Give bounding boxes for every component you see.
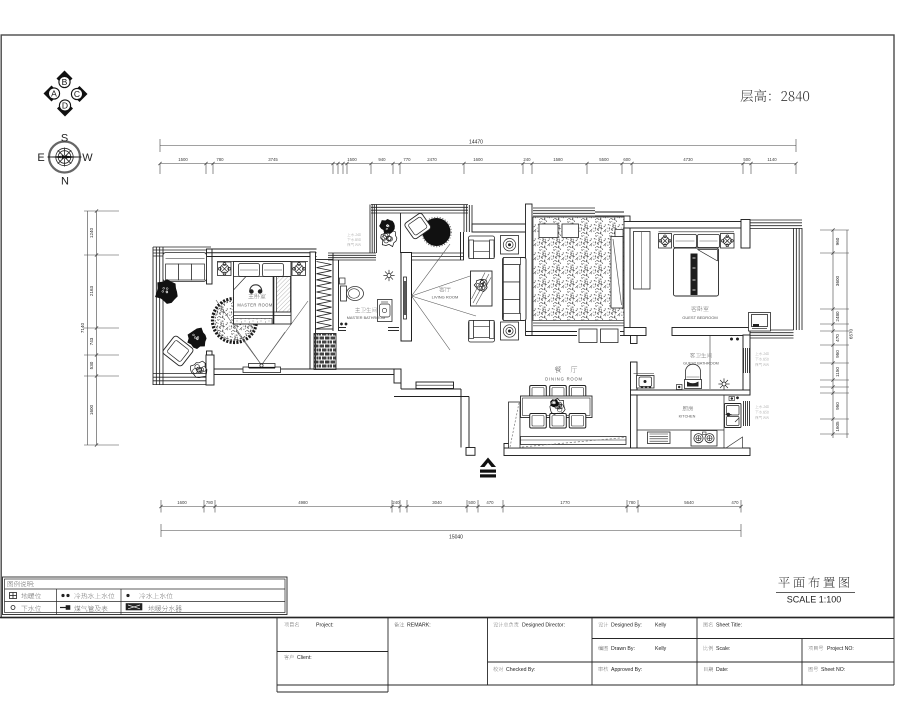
svg-text:KITCHEN: KITCHEN [679,415,696,419]
svg-text:1770: 1770 [560,500,570,505]
svg-text:1580: 1580 [553,157,563,162]
svg-text:GUEST BEDROOM: GUEST BEDROOM [682,315,718,320]
svg-text:15040: 15040 [449,535,463,541]
svg-text:1600: 1600 [89,404,94,415]
svg-text:LIVING ROOM: LIVING ROOM [432,295,459,300]
svg-text:S: S [61,133,68,145]
svg-text:Kelly: Kelly [655,623,667,629]
svg-text:REMARK:: REMARK: [407,623,431,629]
svg-text:5500: 5500 [599,157,609,162]
svg-text:950: 950 [835,402,840,410]
svg-text:A: A [51,88,57,98]
svg-text:470: 470 [835,334,840,342]
svg-text:MASTER BATHROOM: MASTER BATHROOM [347,316,386,320]
svg-text:3745: 3745 [268,157,278,162]
svg-text:530: 530 [89,361,94,369]
svg-text:B: B [62,77,68,87]
svg-text:470: 470 [731,500,739,505]
svg-text:1600: 1600 [177,500,187,505]
svg-text:GUEST BATHROOM: GUEST BATHROOM [683,362,719,366]
svg-text:MASTER ROOM: MASTER ROOM [237,303,273,308]
svg-text:780: 780 [216,157,224,162]
svg-text:5640: 5640 [684,500,694,505]
svg-text:780: 780 [206,500,214,505]
svg-text:C: C [74,89,80,99]
svg-text:Project:: Project: [316,623,334,629]
svg-text:1500: 1500 [347,157,357,162]
svg-text:N: N [61,176,69,188]
svg-text:Checked By:: Checked By: [506,667,535,673]
svg-text:Drawn By:: Drawn By: [611,646,635,652]
svg-text:14470: 14470 [469,140,483,146]
svg-text:1605: 1605 [835,421,840,432]
svg-text:Scale:: Scale: [716,646,730,652]
svg-text:Designed By:: Designed By: [611,623,642,629]
svg-text:3040: 3040 [432,500,442,505]
svg-text:940: 940 [378,157,386,162]
svg-text:SCALE 1:100: SCALE 1:100 [787,595,842,605]
svg-text:W: W [82,152,93,164]
svg-text:2480: 2480 [835,311,840,322]
svg-text:D: D [62,100,68,110]
svg-text:950: 950 [835,350,840,358]
svg-text:7140: 7140 [80,322,85,333]
svg-text:2163: 2163 [89,285,94,296]
svg-text:6570: 6570 [849,328,854,339]
svg-text:Client:: Client: [297,655,312,661]
svg-text:DINING ROOM: DINING ROOM [545,377,583,382]
svg-text:Designed Director:: Designed Director: [522,623,565,629]
svg-text:470: 470 [486,500,494,505]
svg-text:1240: 1240 [89,227,94,238]
svg-text:Project NO:: Project NO: [827,646,854,652]
svg-text:1150: 1150 [835,367,840,377]
svg-text:1600: 1600 [473,157,483,162]
svg-text:500: 500 [743,157,751,162]
svg-text:Sheet Title:: Sheet Title: [716,623,742,629]
svg-text:770: 770 [403,157,411,162]
svg-text:1140: 1140 [767,157,777,162]
svg-text:3600: 3600 [835,275,840,286]
svg-text:743: 743 [89,337,94,345]
svg-text:780: 780 [628,500,636,505]
svg-text:4980: 4980 [298,500,308,505]
svg-text:Kelly: Kelly [655,646,667,652]
svg-text:600: 600 [623,157,631,162]
svg-text:500: 500 [468,500,476,505]
svg-text:Sheet NO:: Sheet NO: [821,667,845,673]
svg-text:Date:: Date: [716,667,728,673]
svg-text:2470: 2470 [427,157,437,162]
svg-text:240: 240 [523,157,531,162]
svg-text:240: 240 [392,500,400,505]
svg-text:E: E [37,152,44,164]
svg-text:4730: 4730 [683,157,693,162]
svg-text:960: 960 [835,237,840,245]
svg-text:Approved By:: Approved By: [611,667,642,673]
svg-text:1500: 1500 [178,157,188,162]
